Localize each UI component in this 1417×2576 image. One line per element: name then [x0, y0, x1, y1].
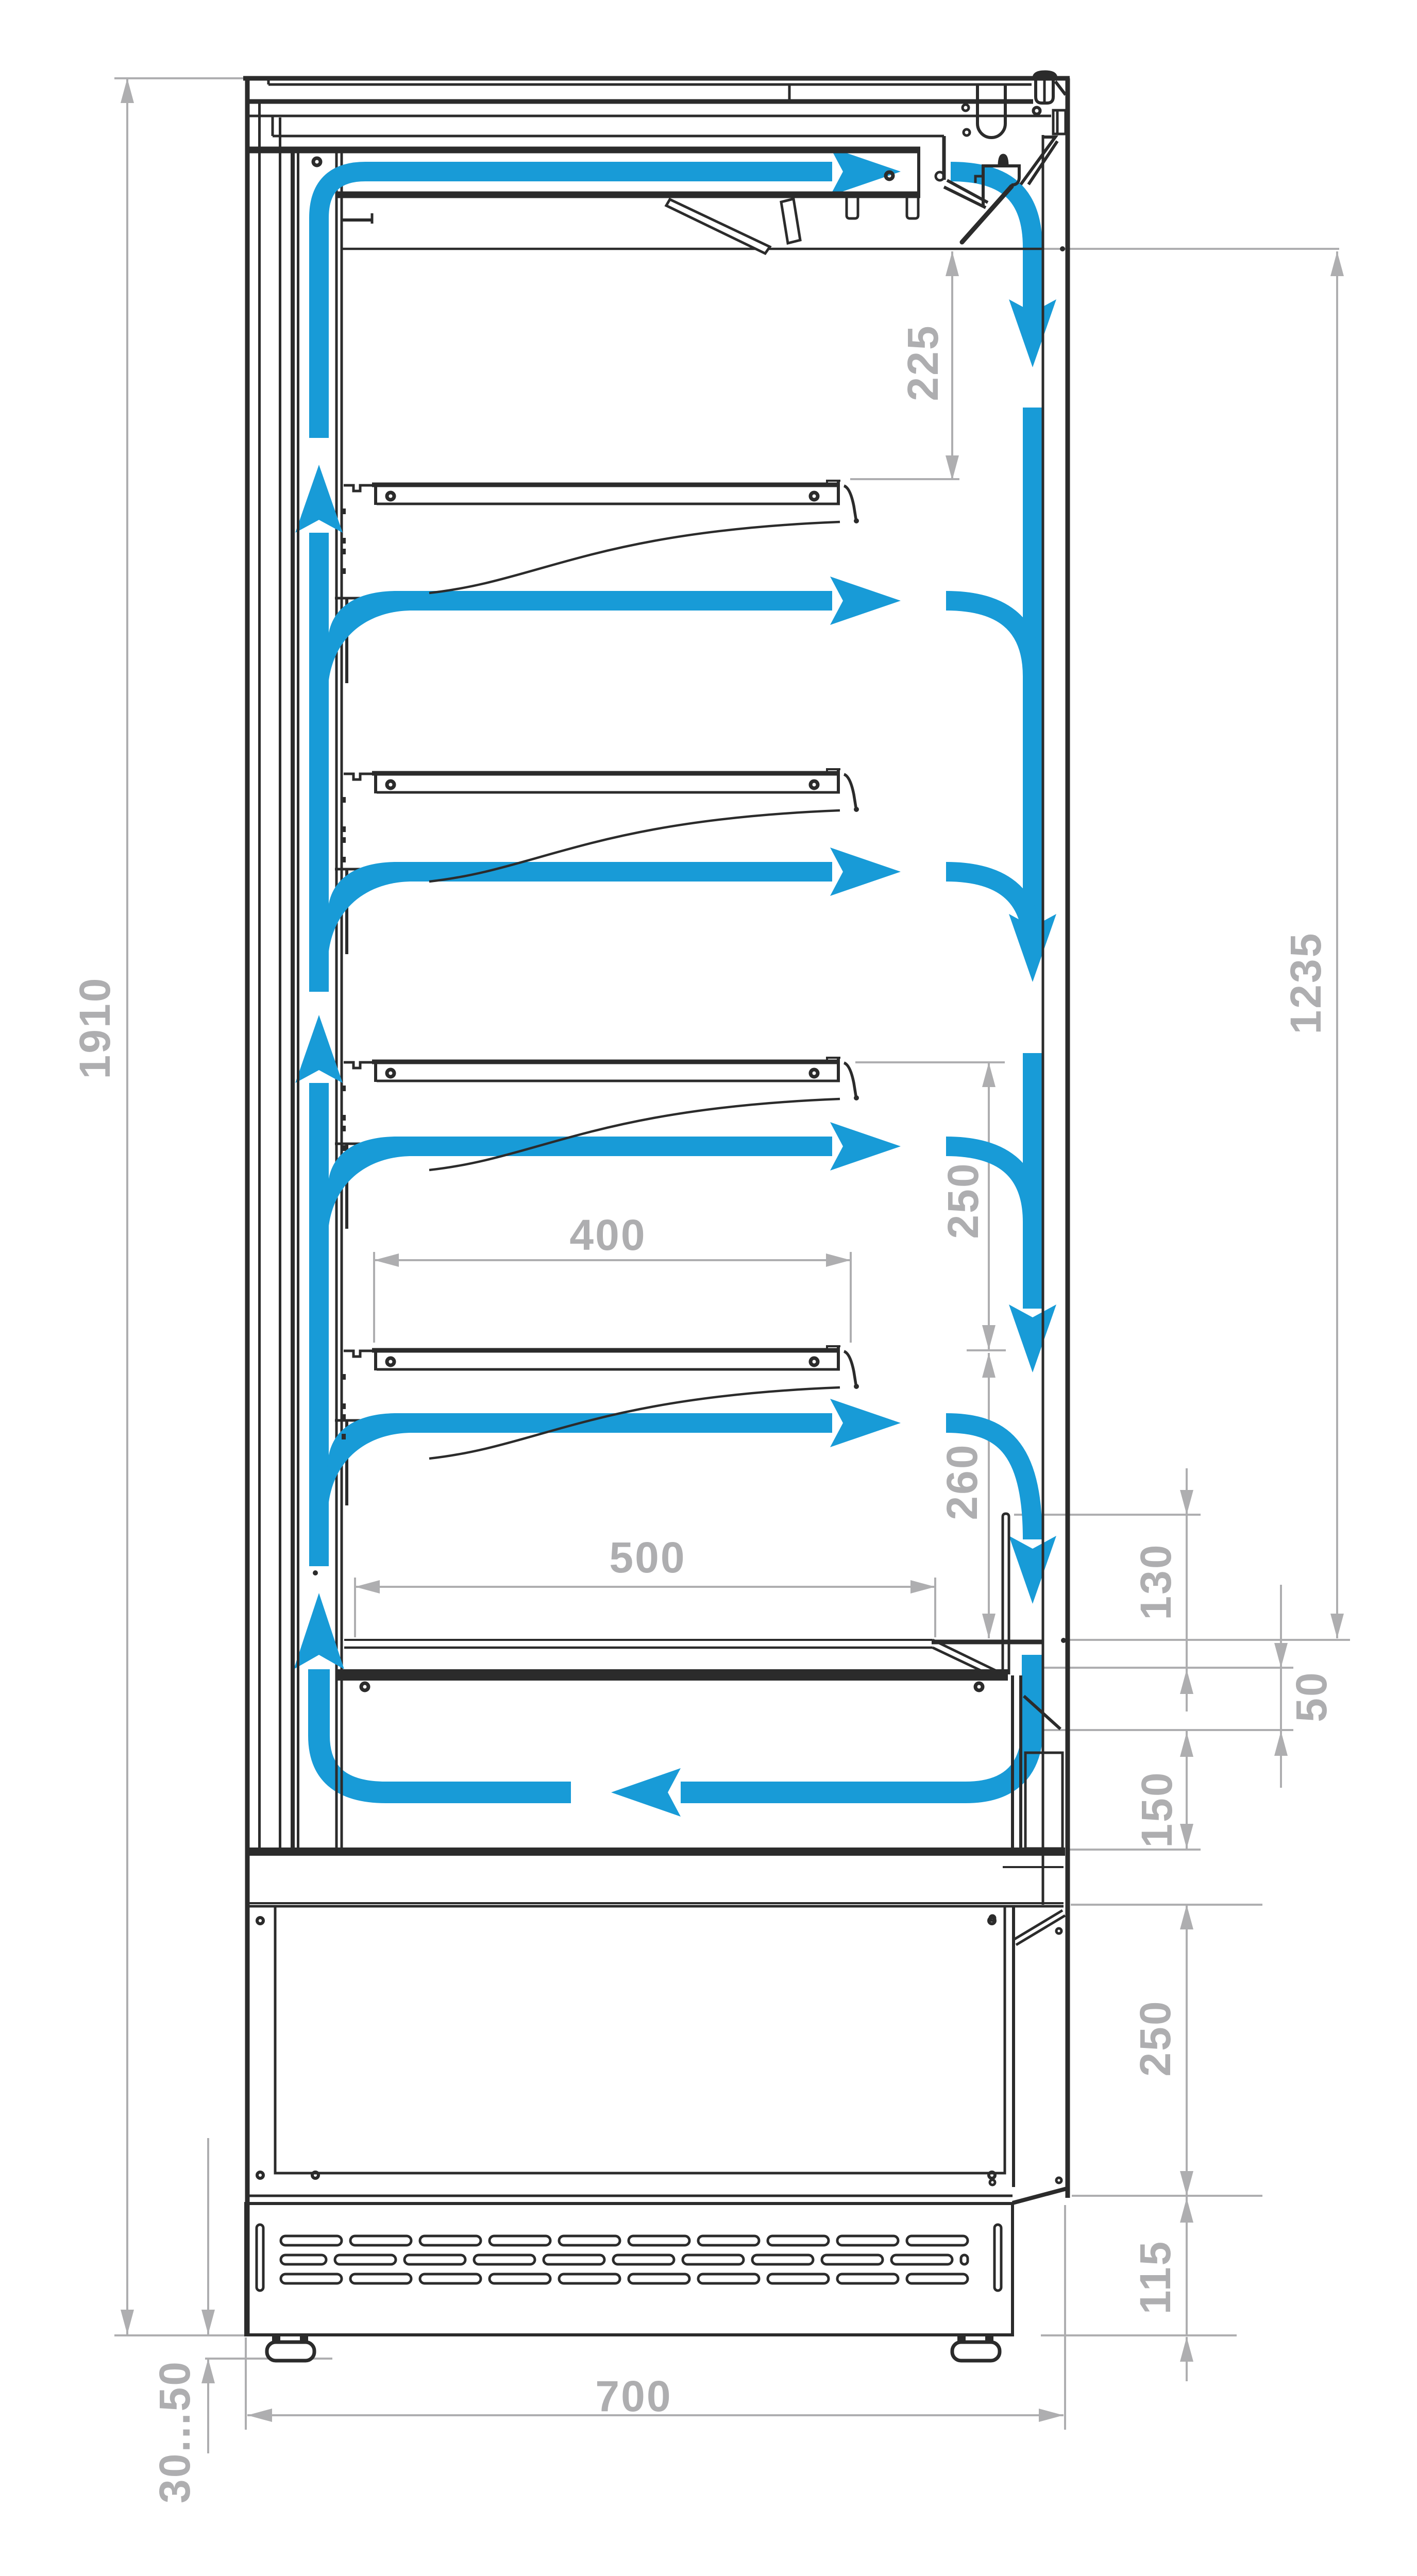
svg-text:115: 115	[1131, 2240, 1179, 2315]
svg-text:250: 250	[1131, 1999, 1179, 2076]
svg-text:250: 250	[939, 1162, 987, 1239]
svg-text:30...50: 30...50	[150, 2360, 199, 2503]
svg-text:260: 260	[938, 1443, 986, 1520]
svg-text:500: 500	[609, 1533, 686, 1582]
svg-text:1910: 1910	[71, 977, 119, 1079]
svg-text:400: 400	[569, 1211, 646, 1259]
svg-text:700: 700	[595, 2372, 672, 2420]
svg-text:50: 50	[1287, 1671, 1336, 1722]
svg-text:150: 150	[1133, 1771, 1181, 1848]
svg-text:130: 130	[1132, 1543, 1180, 1620]
svg-text:225: 225	[899, 324, 947, 401]
svg-text:1235: 1235	[1281, 932, 1330, 1035]
